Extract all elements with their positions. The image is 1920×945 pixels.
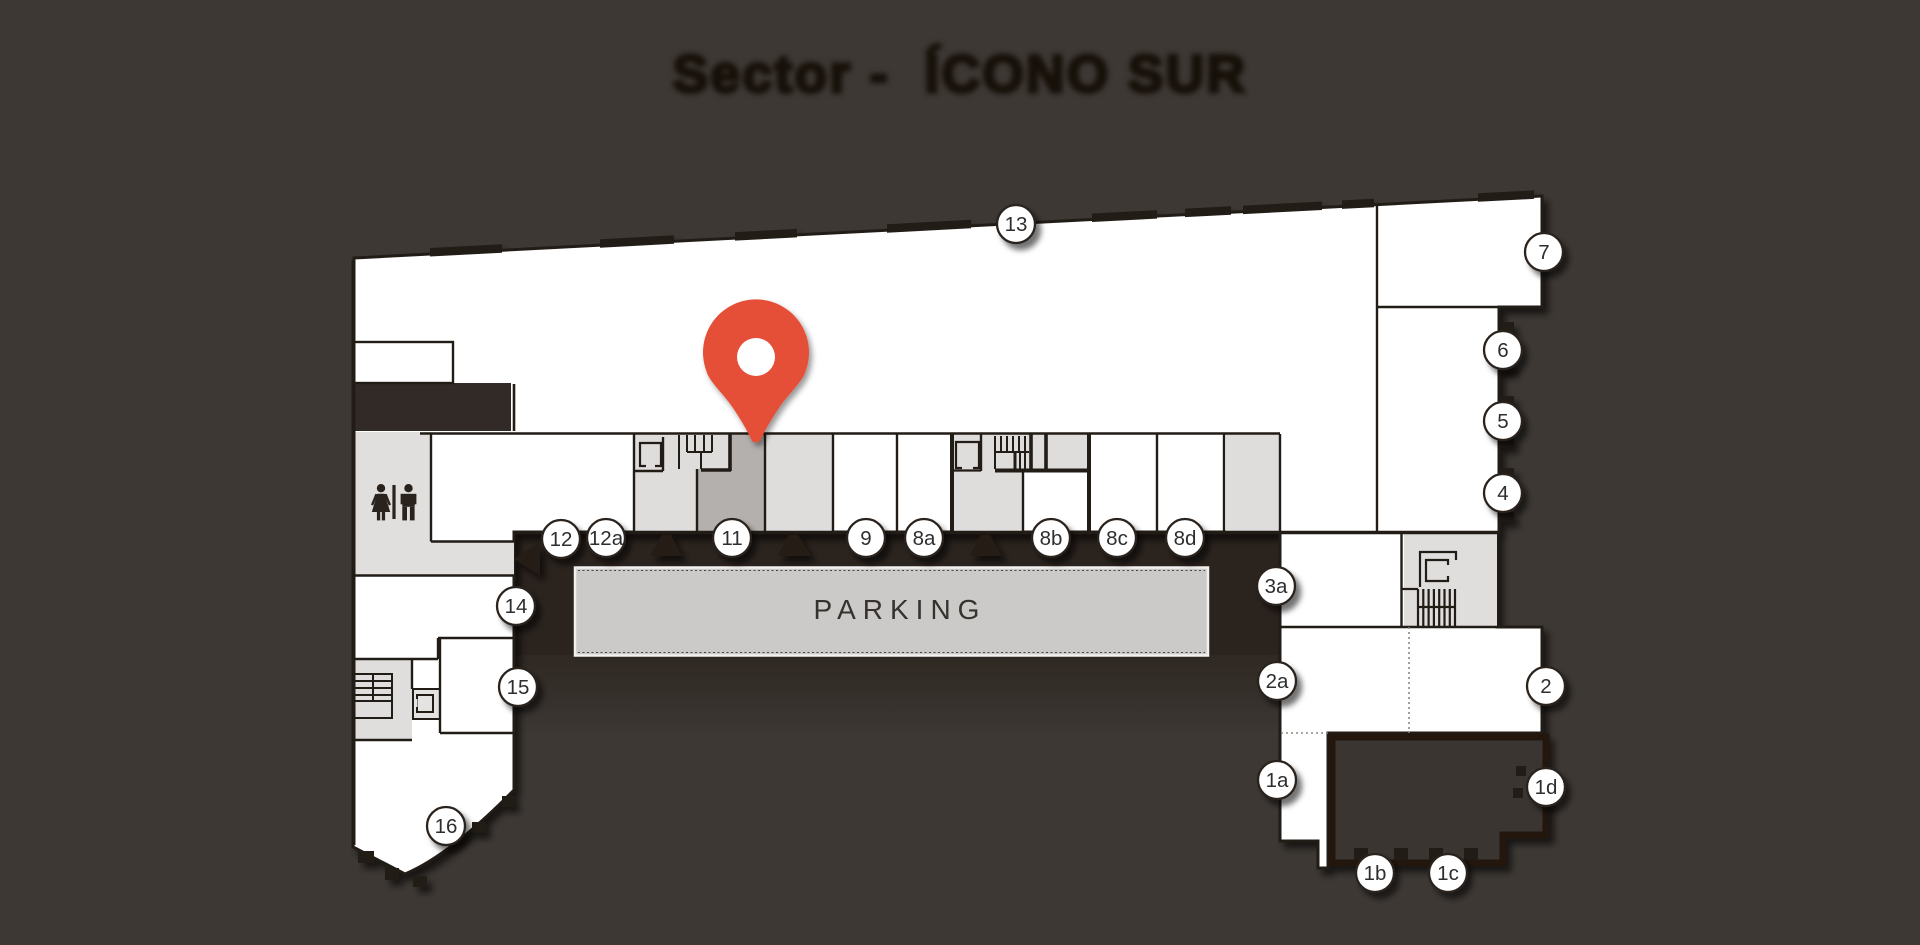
svg-text:15: 15 bbox=[507, 676, 530, 699]
svg-text:PARKING: PARKING bbox=[814, 594, 987, 625]
svg-text:1a: 1a bbox=[1266, 769, 1289, 792]
svg-text:2a: 2a bbox=[1266, 670, 1289, 693]
svg-text:12: 12 bbox=[550, 528, 573, 551]
svg-text:2: 2 bbox=[1540, 675, 1551, 698]
svg-text:8d: 8d bbox=[1174, 527, 1197, 550]
svg-text:14: 14 bbox=[505, 595, 528, 618]
svg-text:7: 7 bbox=[1538, 241, 1549, 264]
svg-text:1c: 1c bbox=[1437, 862, 1459, 885]
svg-text:1d: 1d bbox=[1535, 776, 1558, 799]
svg-text:11: 11 bbox=[721, 527, 742, 550]
svg-text:4: 4 bbox=[1497, 482, 1508, 505]
svg-text:8a: 8a bbox=[913, 527, 936, 550]
svg-text:3a: 3a bbox=[1265, 575, 1288, 598]
svg-text:1b: 1b bbox=[1364, 862, 1387, 885]
svg-text:8b: 8b bbox=[1040, 527, 1063, 550]
svg-text:9: 9 bbox=[860, 527, 871, 550]
svg-text:8c: 8c bbox=[1106, 527, 1128, 550]
svg-text:6: 6 bbox=[1497, 339, 1508, 362]
svg-text:12a: 12a bbox=[589, 527, 624, 550]
svg-text:5: 5 bbox=[1497, 410, 1508, 433]
svg-text:16: 16 bbox=[435, 815, 458, 838]
svg-text:13: 13 bbox=[1005, 213, 1028, 236]
